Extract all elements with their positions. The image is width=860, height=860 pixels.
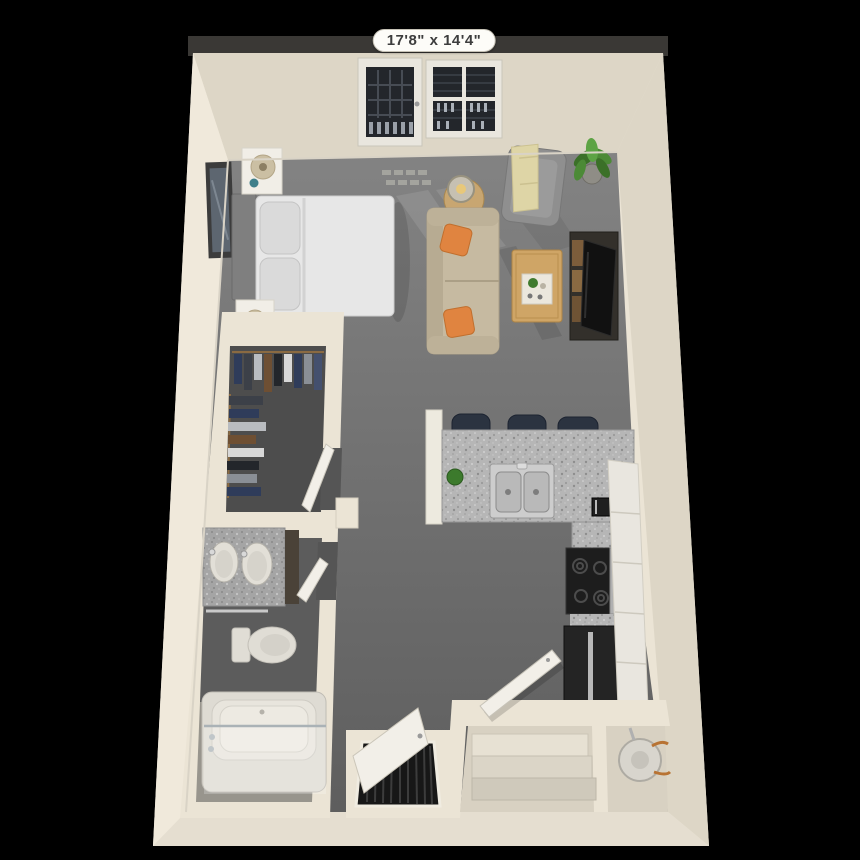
double-basin-sink xyxy=(490,463,554,518)
sofa-armrest xyxy=(427,336,499,354)
coffee-table xyxy=(512,250,562,322)
fridge-handle xyxy=(588,632,593,700)
clothes-item xyxy=(227,461,259,470)
accent-pillow xyxy=(439,223,473,257)
bed-pillow xyxy=(260,202,300,254)
sofa-back xyxy=(427,208,443,354)
faucet xyxy=(517,463,527,469)
wood-accent xyxy=(572,240,584,266)
tv-console xyxy=(570,232,618,340)
coffee-maker xyxy=(592,498,611,516)
toilet xyxy=(232,627,296,663)
double-vanity xyxy=(203,528,299,611)
clothes-item xyxy=(234,354,242,384)
floor-plan-stage: 17'8" x 14'4" xyxy=(0,0,860,860)
lamp-bulb xyxy=(456,184,466,194)
clothes-item xyxy=(304,354,312,384)
bathtub xyxy=(202,692,326,794)
clothes-item xyxy=(227,487,261,496)
bowl xyxy=(540,283,546,289)
counter-plant xyxy=(447,469,463,485)
faucet xyxy=(241,551,247,557)
door-handle xyxy=(415,102,420,107)
cup xyxy=(528,294,533,299)
tub-knob xyxy=(208,746,214,752)
tub-drain xyxy=(260,710,265,715)
tray-plant xyxy=(528,278,538,288)
heater-top xyxy=(631,751,649,769)
clothes-item xyxy=(228,448,264,457)
accent-pillow xyxy=(443,306,475,338)
lamp-finial xyxy=(259,163,267,171)
floor-plan-canvas xyxy=(0,0,860,860)
tub-knob xyxy=(209,734,215,740)
drain xyxy=(505,489,511,495)
clothes-item xyxy=(228,435,256,444)
stair-tread xyxy=(472,734,588,756)
clothes-item xyxy=(244,354,252,390)
clothes-item xyxy=(274,354,282,386)
door-knob xyxy=(546,658,550,662)
sink-bowl xyxy=(247,551,267,581)
clothes-item xyxy=(314,354,322,390)
vanity-cabinet-side xyxy=(285,530,299,604)
headboard xyxy=(232,194,256,300)
clothes-item xyxy=(294,354,302,388)
clothes-item xyxy=(228,422,266,431)
clothes-item xyxy=(229,409,259,418)
sofa xyxy=(427,208,499,354)
toilet-tank xyxy=(232,628,250,662)
faucet xyxy=(209,549,215,555)
drain xyxy=(533,489,539,495)
wall-stub xyxy=(336,498,358,528)
clothes-item xyxy=(264,354,272,392)
sofa-armrest xyxy=(427,208,499,226)
clothes-item xyxy=(227,474,257,483)
window xyxy=(426,60,502,138)
toilet-seat xyxy=(260,634,290,656)
clothes-item xyxy=(229,396,263,405)
stair-tread xyxy=(472,778,596,800)
stairs xyxy=(472,734,596,800)
framed-art xyxy=(205,162,234,259)
clothes-item xyxy=(284,354,292,382)
teal-vase xyxy=(250,179,259,188)
glass-shower-panel xyxy=(204,726,326,794)
clothes-item xyxy=(254,354,262,380)
balcony-door xyxy=(358,58,422,146)
door-knob xyxy=(418,734,423,739)
cup xyxy=(538,295,543,300)
serving-tray xyxy=(522,274,552,304)
sink-bowl xyxy=(215,550,233,578)
stair-tread xyxy=(472,756,592,778)
dimensions-label: 17'8" x 14'4" xyxy=(373,29,496,52)
counter-end-panel xyxy=(426,410,442,524)
